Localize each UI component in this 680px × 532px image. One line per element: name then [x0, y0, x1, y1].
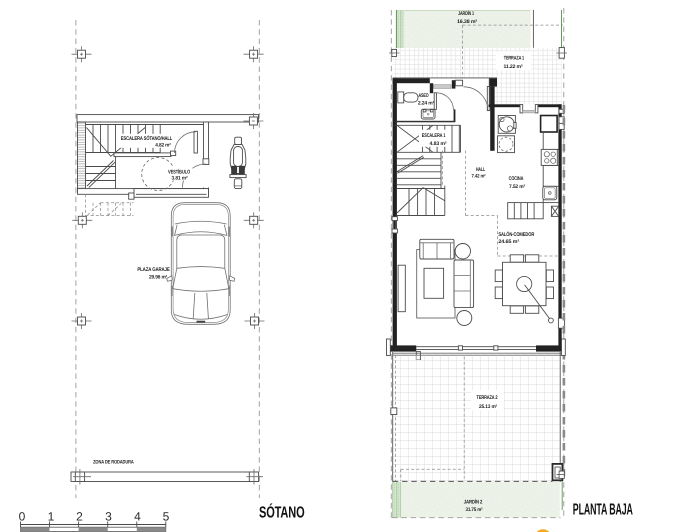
svg-text:ASEO: ASEO	[418, 93, 428, 99]
svg-text:PLAZA GARAJE: PLAZA GARAJE	[137, 267, 170, 273]
svg-text:3.81 m²: 3.81 m²	[172, 175, 188, 181]
svg-text:JARDÍN 1: JARDÍN 1	[458, 10, 474, 17]
svg-text:16.38 m²: 16.38 m²	[457, 19, 477, 25]
svg-text:5: 5	[163, 510, 170, 524]
svg-text:7.42 m²: 7.42 m²	[472, 174, 486, 180]
svg-text:JARDÍN 2: JARDÍN 2	[464, 499, 483, 506]
svg-text:25.13 m²: 25.13 m²	[479, 404, 497, 410]
svg-text:VESTÍBULO: VESTÍBULO	[168, 168, 190, 175]
svg-text:0: 0	[19, 510, 26, 524]
svg-text:COCINA: COCINA	[509, 176, 524, 182]
svg-text:ZONA DE RODADURA: ZONA DE RODADURA	[93, 459, 134, 465]
svg-text:ESCALERA SÓTANO/HALL: ESCALERA SÓTANO/HALL	[121, 135, 173, 142]
svg-text:HALL: HALL	[476, 167, 486, 173]
svg-text:24.65 m²: 24.65 m²	[498, 239, 519, 245]
svg-text:PLANTA BAJA: PLANTA BAJA	[573, 502, 633, 519]
svg-text:2: 2	[76, 510, 83, 524]
svg-text:TERRAZA 2: TERRAZA 2	[477, 395, 498, 401]
svg-text:11.22 m²: 11.22 m²	[504, 64, 523, 70]
svg-text:2.24 m²: 2.24 m²	[418, 100, 435, 106]
svg-text:1: 1	[48, 510, 55, 524]
svg-text:7.52 m²: 7.52 m²	[509, 184, 525, 190]
svg-text:31.75 m²: 31.75 m²	[466, 507, 483, 513]
svg-text:29.98 m²: 29.98 m²	[149, 275, 167, 281]
svg-text:TERRAZA 1: TERRAZA 1	[504, 55, 524, 61]
svg-text:3: 3	[105, 510, 112, 524]
svg-text:SÓTANO: SÓTANO	[259, 502, 305, 521]
svg-text:SALÓN-COMEDOR: SALÓN-COMEDOR	[498, 231, 534, 238]
svg-text:4.83 m²: 4.83 m²	[430, 141, 447, 147]
svg-text:ESCALERA 1: ESCALERA 1	[422, 133, 446, 139]
svg-text:4.82 m²: 4.82 m²	[155, 143, 171, 149]
svg-text:4: 4	[134, 510, 141, 524]
